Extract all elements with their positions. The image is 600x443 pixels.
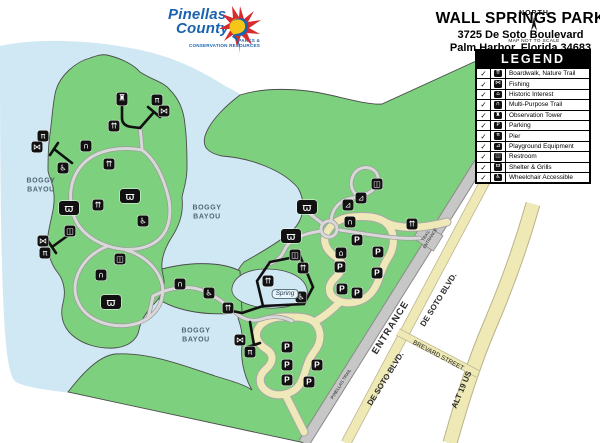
- map-icon-playground: ⊿: [343, 200, 354, 211]
- map-scale-note: MAP NOT TO SCALE: [498, 39, 570, 44]
- map-icon-fishing: ⋈: [38, 236, 49, 247]
- legend-label: Shelter & Grills: [506, 164, 552, 171]
- map-label-pinellastrail: PINELLAS TRAIL: [330, 368, 353, 400]
- multipurpose-icon: ∩: [491, 100, 506, 109]
- legend-label: Multi-Purpose Trail: [506, 101, 562, 108]
- legend-label: Observation Tower: [506, 112, 562, 119]
- map-icon-playground: ⊿: [356, 193, 367, 204]
- legend-label: Wheelchair Accessible: [506, 174, 573, 181]
- map-label-brevardstreet: BREVARD STREET: [411, 339, 465, 373]
- map-icon-shelter: ϖ: [101, 295, 121, 309]
- legend-row-multipurpose: ✓∩Multi-Purpose Trail: [477, 99, 589, 109]
- map-icon-pier: π: [40, 248, 51, 259]
- legend-row-fishing: ✓⋈Fishing: [477, 78, 589, 88]
- historic-icon: ⌂: [491, 90, 506, 99]
- map-label-entrance: ENTRANCE: [370, 299, 412, 357]
- map-icon-boardwalk: ⇈: [223, 303, 234, 314]
- map-label-spring: Spring: [272, 289, 299, 299]
- checkmark-icon: ✓: [477, 173, 491, 182]
- map-label-desotoblvd: DE SOTO BLVD.: [418, 271, 459, 328]
- north-arrow-icon: [527, 17, 541, 33]
- map-label-trail-entrance: TRAILENTRANCE: [417, 224, 438, 249]
- map-icon-parking: P: [335, 262, 346, 273]
- map-icon-boardwalk: ⇈: [298, 263, 309, 274]
- north-indicator: NORTH MAP NOT TO SCALE: [498, 10, 570, 44]
- map-label-boggy-bayou: BOGGYBAYOU: [192, 204, 221, 222]
- legend-label: Pier: [506, 133, 520, 140]
- map-icon-pier: π: [245, 347, 256, 358]
- map-icon-pier: π: [152, 95, 163, 106]
- map-icon-wheelchair: ♿: [138, 216, 149, 227]
- wheelchair-icon: ♿: [491, 173, 506, 182]
- legend-row-pier: ✓πPier: [477, 130, 589, 140]
- checkmark-icon: ✓: [477, 90, 491, 99]
- pinellas-county-logo: Pinellas County PARKS & CONSERVATION RES…: [168, 8, 260, 64]
- map-label-boggy-bayou: BOGGYBAYOU: [181, 327, 210, 345]
- header: Pinellas County PARKS & CONSERVATION RES…: [168, 4, 438, 64]
- legend-row-wheelchair: ✓♿Wheelchair Accessible: [477, 172, 589, 182]
- legend-label: Fishing: [506, 81, 530, 88]
- legend-row-playground: ✓⊿Playground Equipment: [477, 141, 589, 151]
- map-icon-pier: π: [38, 131, 49, 142]
- map-label-alt19us: ALT 19 US: [450, 370, 475, 410]
- map-icon-parking: P: [337, 284, 348, 295]
- map-label-desotoblvd: DE SOTO BLVD.: [365, 350, 406, 407]
- pier-icon: π: [491, 131, 506, 140]
- boardwalk-icon: ⇈: [491, 69, 506, 78]
- fishing-icon: ⋈: [491, 79, 506, 88]
- legend-row-restroom: ✓◫Restroom: [477, 151, 589, 161]
- map-icon-parking: P: [282, 360, 293, 371]
- map-icon-boardwalk: ⇈: [104, 159, 115, 170]
- map-icon-shelter: ϖ: [281, 229, 301, 243]
- shelter-icon: ϖ: [491, 163, 506, 172]
- map-icon-parking: P: [372, 268, 383, 279]
- checkmark-icon: ✓: [477, 111, 491, 120]
- map-icon-boardwalk: ⇈: [93, 200, 104, 211]
- legend-row-tower: ✓♜Observation Tower: [477, 110, 589, 120]
- map-icon-wheelchair: ♿: [204, 288, 215, 299]
- sunburst-icon: [216, 4, 262, 61]
- legend-row-parking: ✓PParking: [477, 120, 589, 130]
- map-icon-tower: ♜: [117, 93, 128, 106]
- map-icon-fishing: ⋈: [235, 335, 246, 346]
- map-icon-parking: P: [373, 247, 384, 258]
- map-icon-wheelchair: ♿: [58, 163, 69, 174]
- map-label-boggy-bayou: BOGGYBAYOU: [26, 177, 55, 195]
- map-icon-parking: P: [282, 375, 293, 386]
- map-icon-multipurpose: ∩: [81, 141, 92, 152]
- map-icon-multipurpose: ∩: [175, 279, 186, 290]
- parking-icon: P: [491, 121, 506, 130]
- legend-row-shelter: ✓ϖShelter & Grills: [477, 162, 589, 172]
- legend-row-historic: ✓⌂Historic Interest: [477, 89, 589, 99]
- checkmark-icon: ✓: [477, 142, 491, 151]
- restroom-icon: ◫: [491, 152, 506, 161]
- checkmark-icon: ✓: [477, 69, 491, 78]
- playground-icon: ⊿: [491, 142, 506, 151]
- map-icon-boardwalk: ⇈: [109, 121, 120, 132]
- legend-label: Parking: [506, 122, 531, 129]
- map-icon-restroom: ◫: [372, 179, 383, 190]
- map-icon-restroom: ◫: [65, 226, 76, 237]
- map-icon-shelter: ϖ: [297, 200, 317, 214]
- map-icon-fishing: ⋈: [159, 106, 170, 117]
- legend-label: Playground Equipment: [506, 143, 574, 150]
- map-icon-parking: P: [304, 377, 315, 388]
- checkmark-icon: ✓: [477, 100, 491, 109]
- tower-icon: ♜: [491, 111, 506, 120]
- map-icon-historic: ⌂: [336, 248, 347, 259]
- legend-rows: ✓⇈Boardwalk, Nature Trail✓⋈Fishing✓⌂Hist…: [477, 68, 589, 182]
- park-map-page: ♜π⋈⇈π⋈∩♿⇈ϖϖ⇈♿◫⋈π◫∩ϖϖϖ◫⇈⌂◫⊿⊿∩⇈⇈♿∩♿⇈⋈πPPPP…: [0, 0, 600, 443]
- checkmark-icon: ✓: [477, 121, 491, 130]
- checkmark-icon: ✓: [477, 152, 491, 161]
- map-icon-shelter: ϖ: [120, 189, 140, 203]
- map-icon-parking: P: [282, 342, 293, 353]
- legend-label: Historic Interest: [506, 91, 553, 98]
- map-icon-fishing: ⋈: [32, 142, 43, 153]
- legend-label: Restroom: [506, 153, 537, 160]
- map-icon-restroom: ◫: [290, 250, 301, 261]
- map-icon-parking: P: [312, 360, 323, 371]
- map-icon-boardwalk: ⇈: [263, 276, 274, 287]
- map-icon-shelter: ϖ: [59, 201, 79, 215]
- map-icon-restroom: ◫: [115, 254, 126, 265]
- map-icon-parking: P: [352, 288, 363, 299]
- checkmark-icon: ✓: [477, 131, 491, 140]
- legend-label: Boardwalk, Nature Trail: [506, 70, 575, 77]
- legend-row-boardwalk: ✓⇈Boardwalk, Nature Trail: [477, 68, 589, 78]
- legend: LEGEND ✓⇈Boardwalk, Nature Trail✓⋈Fishin…: [475, 49, 591, 184]
- map-icon-parking: P: [352, 235, 363, 246]
- map-icon-multipurpose: ∩: [345, 217, 356, 228]
- checkmark-icon: ✓: [477, 163, 491, 172]
- checkmark-icon: ✓: [477, 79, 491, 88]
- map-icon-multipurpose: ∩: [96, 270, 107, 281]
- map-icon-boardwalk: ⇈: [407, 219, 418, 230]
- legend-title: LEGEND: [477, 51, 589, 68]
- north-label: NORTH: [498, 10, 570, 17]
